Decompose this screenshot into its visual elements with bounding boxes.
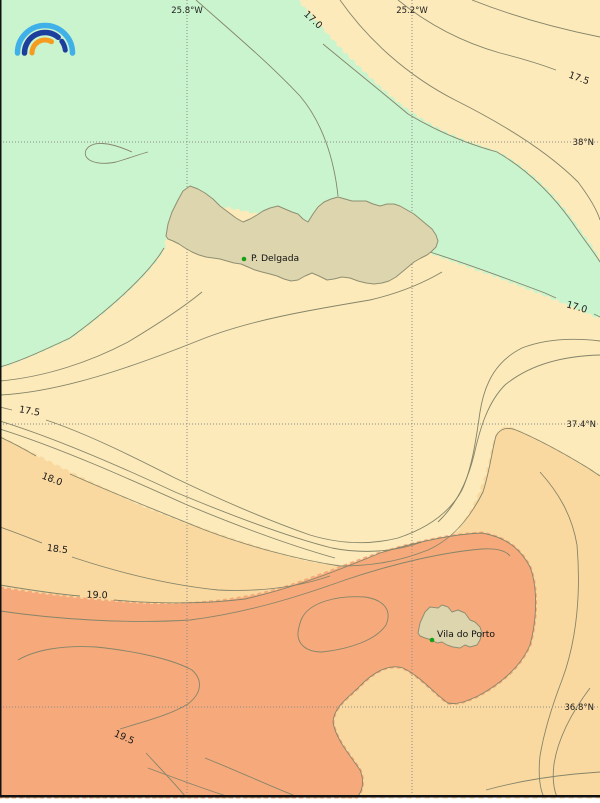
map-canvas: P. Delgada Vila do Porto 17.0 17.5 17.0 … [0, 0, 600, 803]
parallel-label: 36.8°N [564, 703, 594, 713]
frame-left [0, 0, 2, 797]
parallel-label: 37.4°N [566, 420, 596, 430]
frame-bottom [0, 795, 600, 798]
place-label: Vila do Porto [437, 629, 495, 640]
meridian-label: 25.8°W [171, 6, 203, 16]
parallel-label: 38°N [573, 138, 594, 148]
temperature-bands [0, 0, 600, 797]
place-dot-vila-do-porto [430, 638, 435, 643]
sst-contour-map: P. Delgada Vila do Porto 17.0 17.5 17.0 … [0, 0, 600, 803]
place-label: P. Delgada [251, 253, 299, 264]
meridian-label: 25.2°W [396, 6, 428, 16]
isoline-label: 19.0 [86, 590, 108, 602]
place-dot-p-delgada [242, 257, 247, 262]
